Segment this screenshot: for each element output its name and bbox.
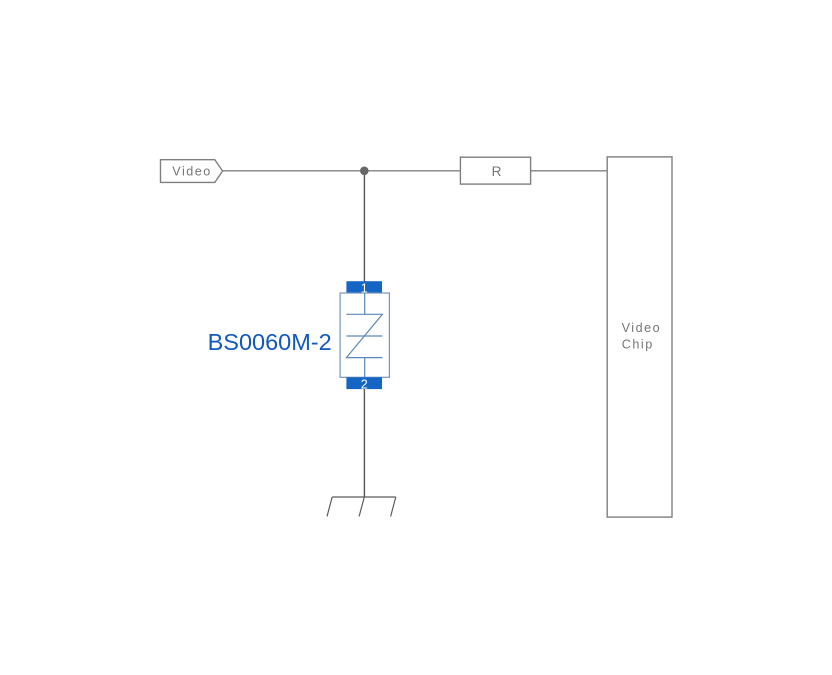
svg-text:Video: Video — [172, 165, 211, 179]
svg-text:Chip: Chip — [622, 338, 654, 352]
svg-text:Video: Video — [622, 321, 661, 335]
svg-text:BS0060M-2: BS0060M-2 — [208, 329, 332, 355]
svg-text:R: R — [492, 164, 502, 179]
svg-text:2: 2 — [361, 377, 368, 391]
